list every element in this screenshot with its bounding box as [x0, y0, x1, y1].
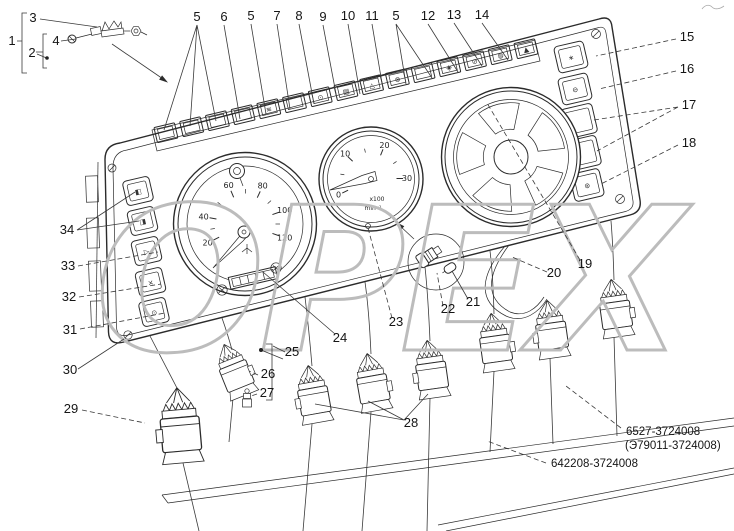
part-number-1: 6527-3724008 [626, 426, 700, 438]
callout-15: 15 [680, 29, 694, 44]
callout-13: 13 [447, 7, 461, 22]
parts-diagram-canvas: ≋⊙▤△⊗◈⊘◍▲ ◧◨▷×⊙ ∗⊖⊛ 20406080100120 0 [0, 0, 734, 531]
right-indicator-button: ⊖ [557, 72, 592, 105]
part-numbers: 6527-3724008 (Э79011-3724008) 642208-372… [551, 426, 721, 470]
callout-9: 9 [319, 9, 326, 24]
callout-25: 25 [285, 344, 299, 359]
callout-31: 31 [63, 322, 77, 337]
callout-19: 19 [578, 256, 592, 271]
leader-arrow-head [159, 75, 168, 82]
callout-33: 33 [61, 258, 75, 273]
callout-20: 20 [547, 265, 561, 280]
callout-5: 5 [193, 9, 200, 24]
callout-32: 32 [62, 289, 76, 304]
callout-2: 2 [28, 45, 35, 60]
callout-10: 10 [341, 8, 355, 23]
indicator-symbol-icon: ≋ [265, 105, 273, 114]
callout-8: 8 [295, 8, 302, 23]
callout-3: 3 [29, 10, 36, 25]
indicator-window [205, 111, 229, 131]
indicator-symbol-icon: ▲ [523, 45, 531, 54]
callout-5: 5 [392, 8, 399, 23]
part-number-2: (Э79011-3724008) [625, 440, 721, 452]
watermark: ОРЕХ [95, 165, 693, 398]
gauge-tick-label: 20 [379, 141, 389, 150]
indicator-symbol-icon: ⊗ [394, 75, 402, 84]
callout-17: 17 [682, 97, 696, 112]
callout-27: 27 [260, 385, 274, 400]
callout-12: 12 [421, 8, 435, 23]
corner-mark [702, 5, 724, 9]
callout-34: 34 [60, 222, 74, 237]
panel-screw-top-right [592, 30, 601, 39]
callout-4: 4 [52, 33, 59, 48]
callout-28: 28 [404, 415, 418, 430]
callout-14: 14 [475, 7, 489, 22]
callout-24: 24 [333, 330, 347, 345]
callout-29: 29 [64, 401, 78, 416]
indicator-symbol-icon: ⊙ [317, 93, 325, 102]
callout-22: 22 [441, 301, 455, 316]
indicator-symbol-icon: ▤ [342, 87, 350, 96]
indicator-window [411, 63, 435, 83]
callout-23: 23 [389, 314, 403, 329]
instrument-panel-diagram: ≋⊙▤△⊗◈⊘◍▲ ◧◨▷×⊙ ∗⊖⊛ 20406080100120 0 [0, 0, 734, 531]
indicator-window: ⊙ [308, 87, 332, 107]
callout-11: 11 [365, 8, 379, 23]
callout-1: 1 [8, 33, 15, 48]
callout-16: 16 [680, 61, 694, 76]
indicator-window: ◍ [488, 45, 512, 65]
callout-26: 26 [261, 366, 275, 381]
part-number-3: 642208-3724008 [551, 458, 638, 470]
right-indicator-button: ∗ [553, 40, 588, 73]
callout-21: 21 [466, 294, 480, 309]
callout-6: 6 [220, 9, 227, 24]
callout-5: 5 [247, 8, 254, 23]
indicator-symbol-icon: ◈ [446, 63, 454, 72]
callout-18: 18 [682, 135, 696, 150]
callout-7: 7 [273, 8, 280, 23]
callout-30: 30 [63, 362, 77, 377]
